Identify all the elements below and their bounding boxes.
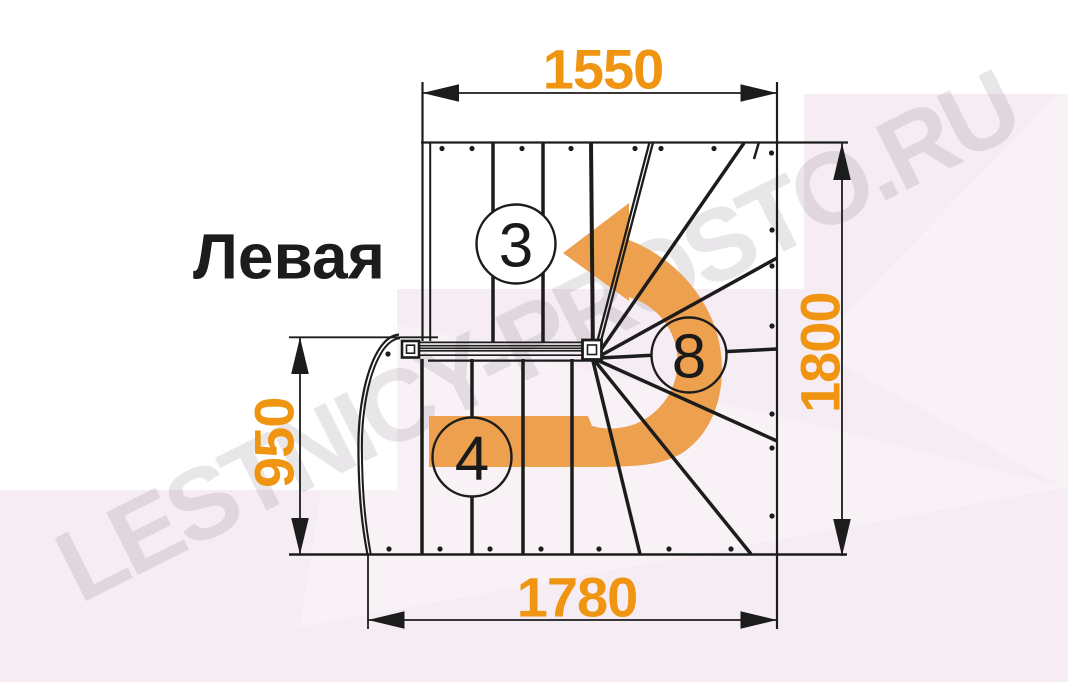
svg-text:1780: 1780 xyxy=(517,566,638,629)
svg-text:Левая: Левая xyxy=(193,221,385,293)
svg-text:950: 950 xyxy=(243,398,306,488)
svg-text:1550: 1550 xyxy=(543,38,664,101)
svg-text:4: 4 xyxy=(455,425,489,494)
svg-text:3: 3 xyxy=(499,212,533,281)
svg-text:1800: 1800 xyxy=(789,292,852,413)
svg-text:8: 8 xyxy=(672,323,706,392)
